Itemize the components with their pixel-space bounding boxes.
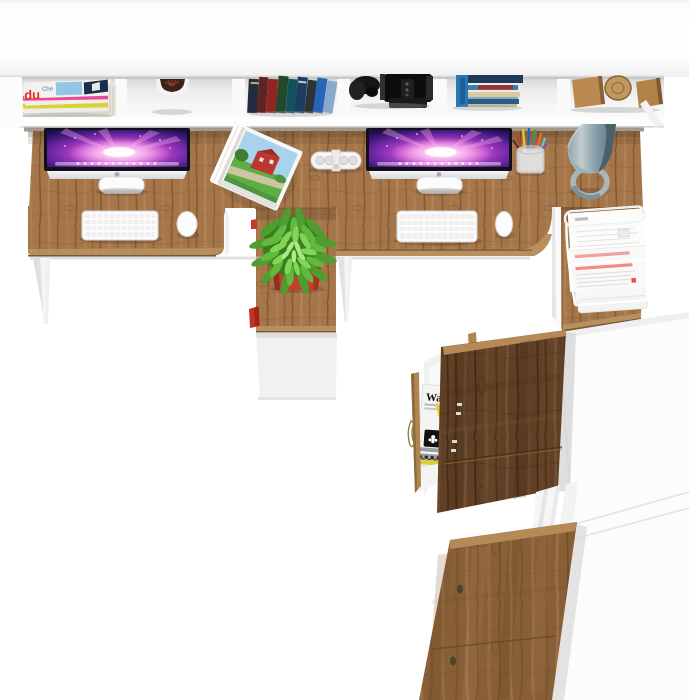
svg-text:Che: Che <box>42 87 54 93</box>
svg-text:du: du <box>24 87 40 103</box>
